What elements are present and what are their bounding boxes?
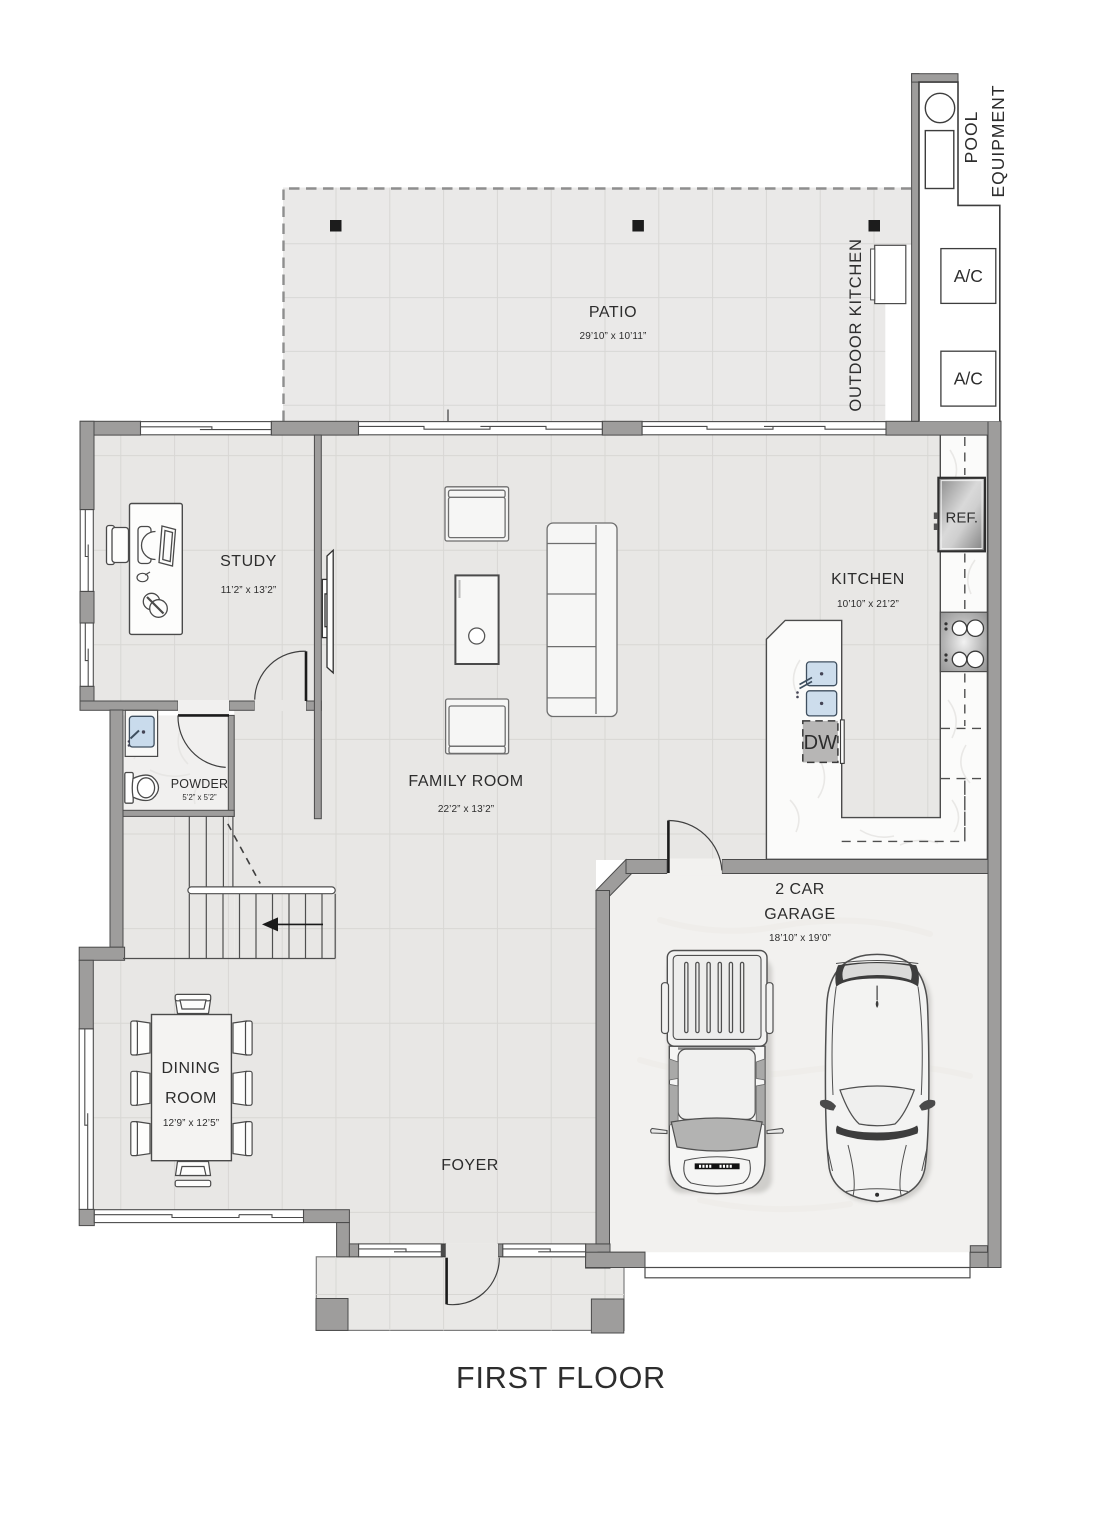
- svg-text:STUDY: STUDY: [220, 553, 277, 570]
- svg-text:11’2” x 13’2”: 11’2” x 13’2”: [221, 585, 277, 596]
- svg-text:29’10” x 10’11”: 29’10” x 10’11”: [580, 331, 647, 342]
- svg-text:PATIO: PATIO: [589, 304, 637, 321]
- svg-text:2 CAR: 2 CAR: [775, 881, 825, 898]
- svg-text:FAMILY ROOM: FAMILY ROOM: [408, 773, 523, 790]
- svg-text:EQUIPMENT: EQUIPMENT: [988, 84, 1008, 197]
- svg-text:5’2” x 5’2”: 5’2” x 5’2”: [182, 793, 217, 802]
- svg-text:10’10” x 21’2”: 10’10” x 21’2”: [837, 599, 899, 610]
- svg-text:FOYER: FOYER: [441, 1157, 499, 1174]
- svg-text:12’9” x 12’5”: 12’9” x 12’5”: [163, 1118, 219, 1129]
- svg-text:POOL: POOL: [961, 111, 981, 164]
- svg-text:22’2” x 13’2”: 22’2” x 13’2”: [438, 804, 494, 815]
- svg-text:18’10” x 19’0”: 18’10” x 19’0”: [769, 933, 831, 944]
- svg-text:FIRST FLOOR: FIRST FLOOR: [456, 1361, 666, 1395]
- svg-text:A/C: A/C: [954, 266, 983, 286]
- svg-text:A/C: A/C: [954, 369, 983, 389]
- svg-text:KITCHEN: KITCHEN: [831, 571, 905, 588]
- svg-text:GARAGE: GARAGE: [764, 906, 835, 923]
- svg-text:REF.: REF.: [946, 510, 979, 527]
- svg-text:OUTDOOR KITCHEN: OUTDOOR KITCHEN: [847, 238, 865, 411]
- svg-text:ROOM: ROOM: [165, 1090, 217, 1107]
- svg-text:DW: DW: [804, 732, 837, 754]
- svg-text:DINING: DINING: [162, 1060, 221, 1077]
- svg-text:POWDER: POWDER: [171, 777, 228, 791]
